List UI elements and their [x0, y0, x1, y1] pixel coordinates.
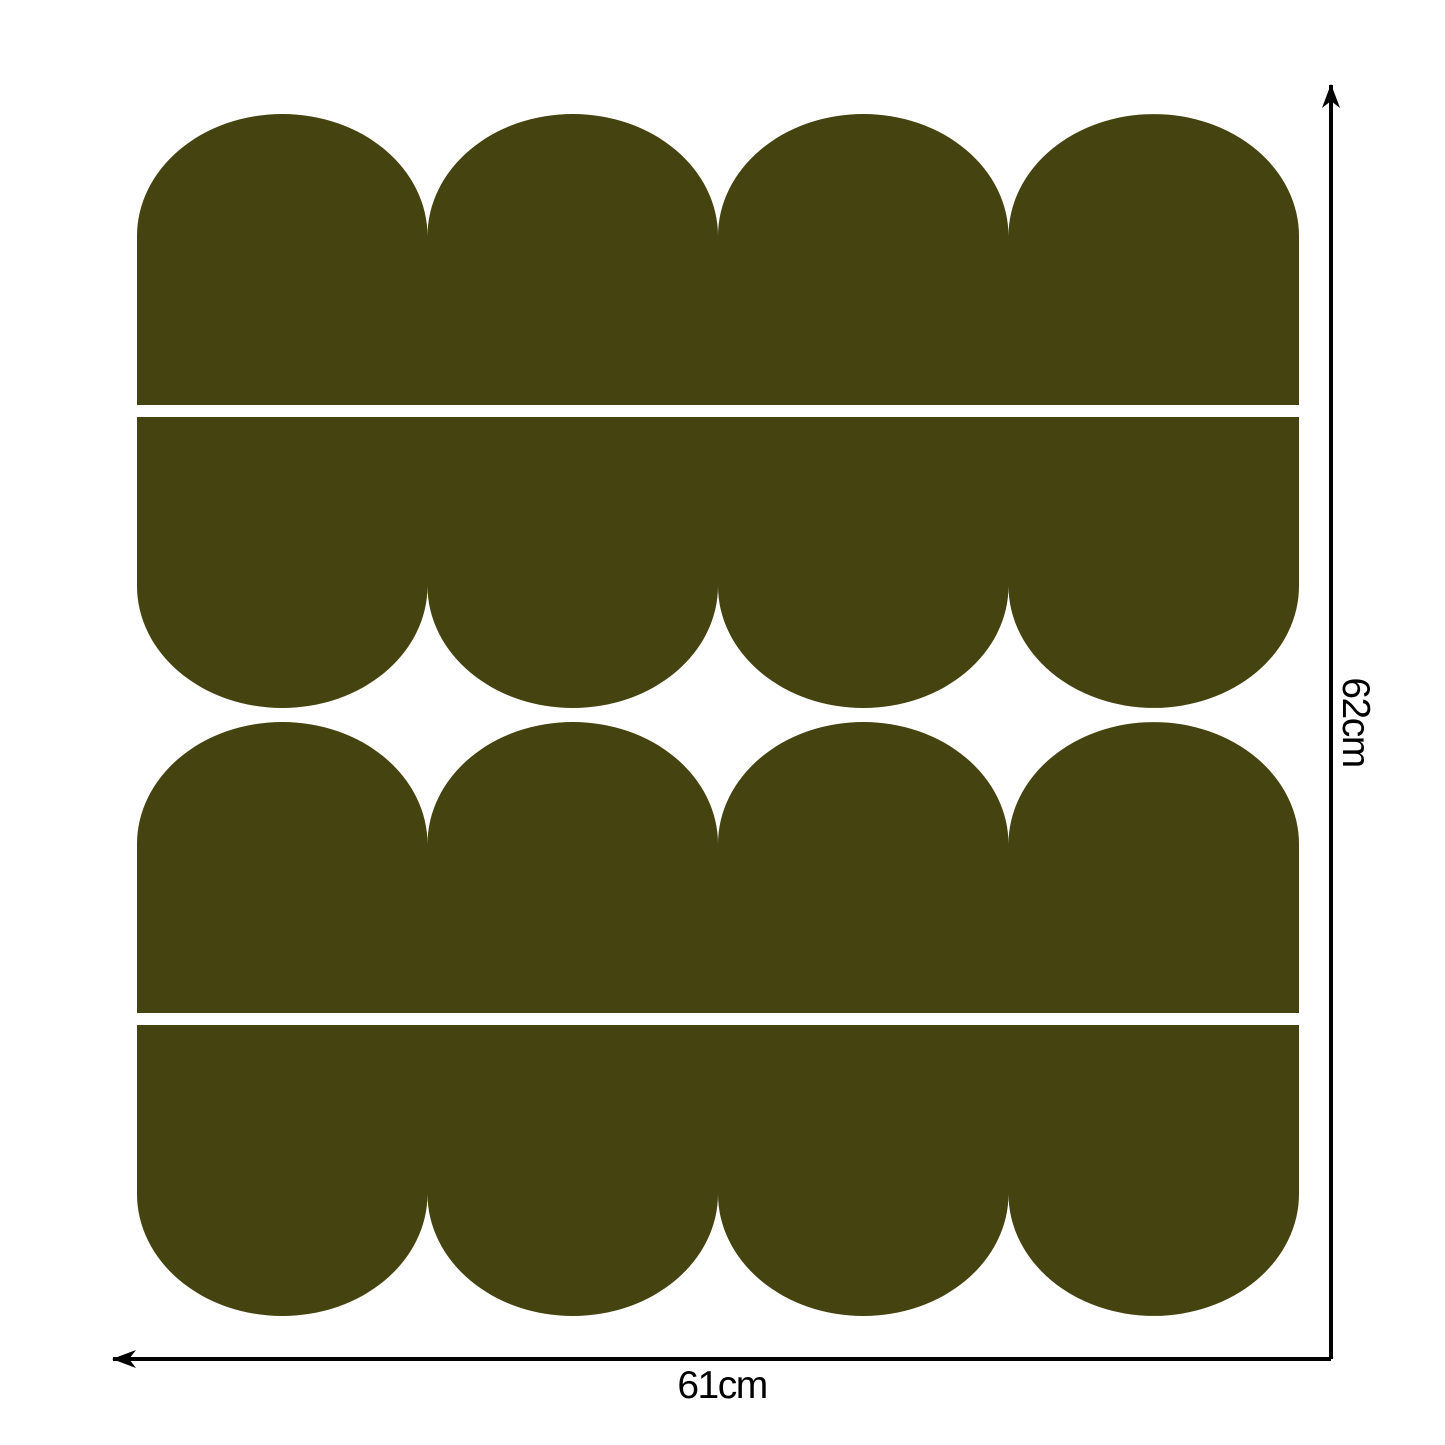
- height-dimension: 62cm: [1322, 84, 1377, 1359]
- scallop-band-row-3: [137, 722, 1299, 1013]
- height-label: 62cm: [1334, 677, 1377, 766]
- product-dimension-diagram: 62cm 61cm: [0, 0, 1445, 1445]
- diagram-canvas: 62cm 61cm: [0, 0, 1445, 1445]
- scallop-band-row-4: [137, 1025, 1299, 1316]
- scallop-band-row-1: [137, 114, 1299, 405]
- scallop-band-row-2: [137, 417, 1299, 708]
- width-label: 61cm: [677, 1364, 766, 1407]
- scallop-bands: [137, 114, 1299, 1316]
- width-dimension: 61cm: [112, 1350, 1331, 1407]
